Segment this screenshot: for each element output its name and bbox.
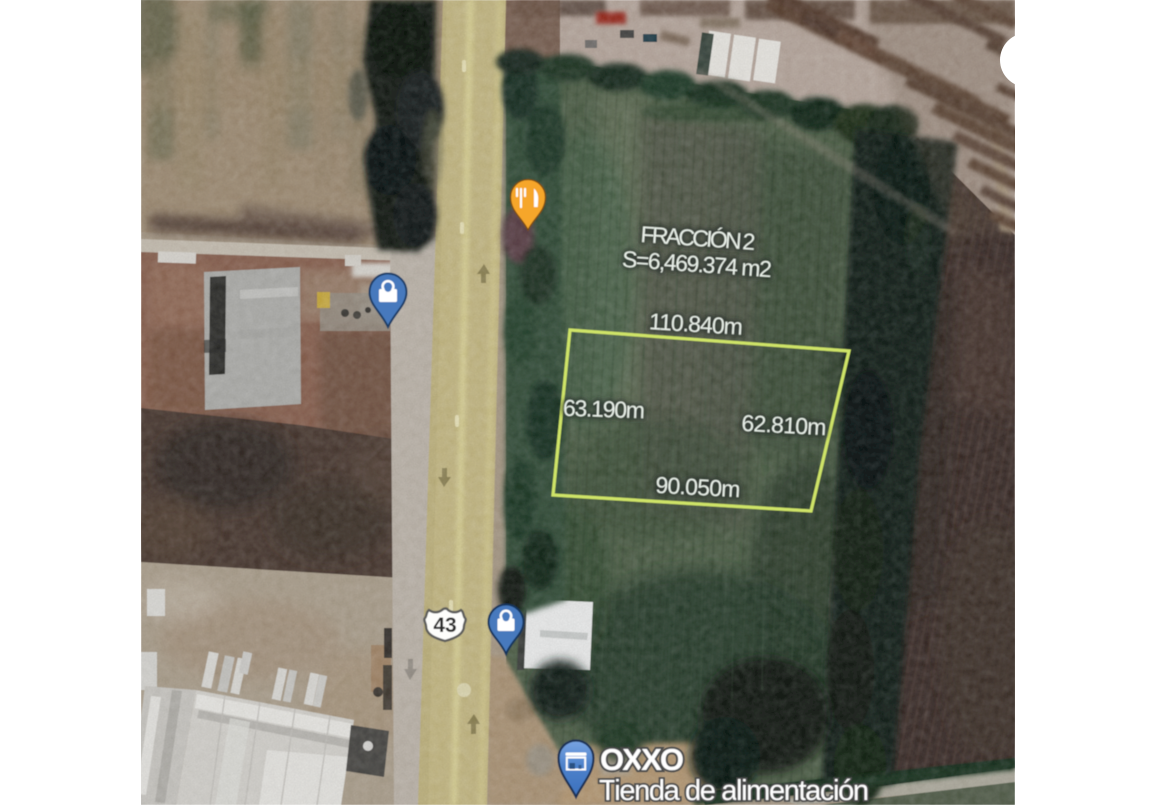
svg-text:Tienda de alimentación: Tienda de alimentación: [599, 775, 869, 805]
svg-text:63.190m: 63.190m: [563, 395, 646, 424]
svg-text:62.810m: 62.810m: [741, 410, 827, 440]
svg-text:90.050m: 90.050m: [655, 472, 741, 502]
svg-text:OXXO: OXXO: [600, 742, 684, 777]
svg-text:43: 43: [433, 614, 456, 637]
